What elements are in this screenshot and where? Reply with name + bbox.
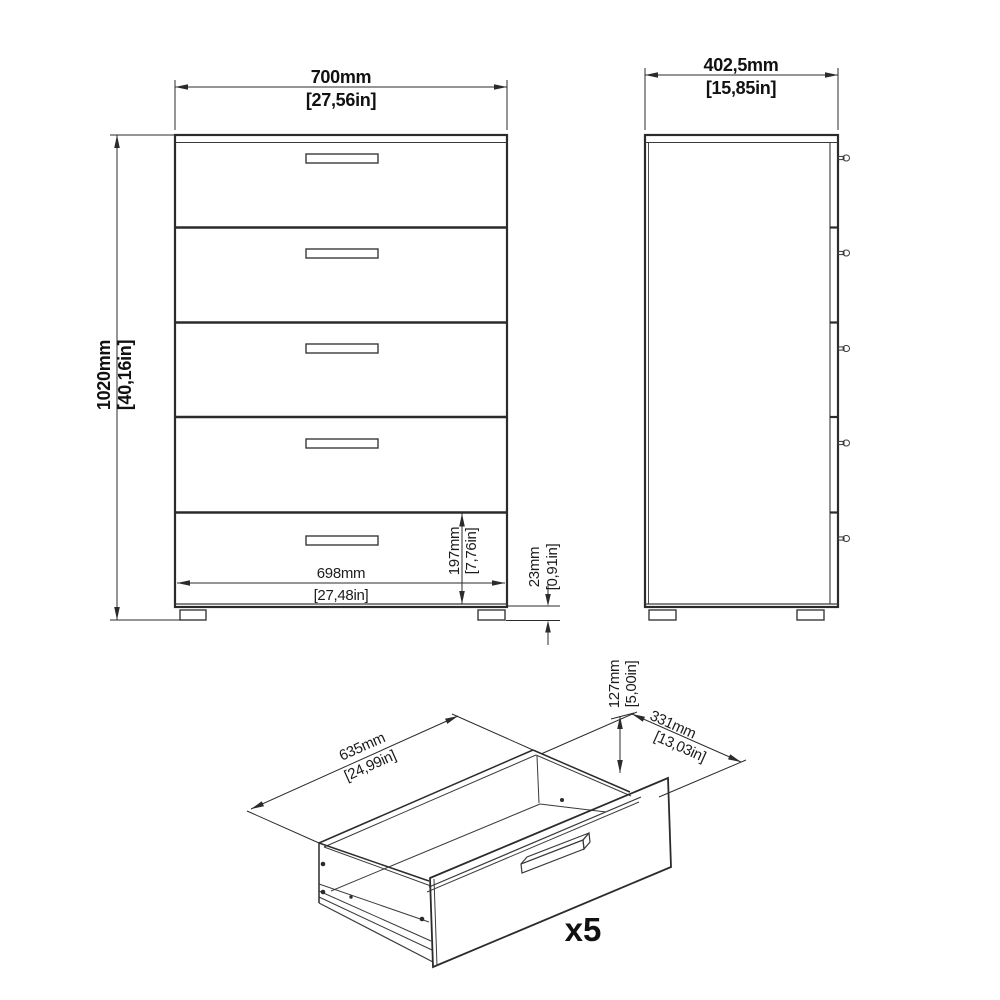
drawer-handle: [306, 154, 378, 163]
inner-width-mm-label: 698mm: [317, 565, 366, 582]
drawer-height-mm-label: 127mm: [606, 660, 623, 709]
side-depth-dimension: 402,5mm [15,85in]: [645, 55, 838, 130]
side-drawer-joints: [830, 228, 838, 513]
drawer-iso-handle: [521, 833, 590, 873]
drawer-width-dimension: 635mm [24,99in]: [247, 714, 533, 843]
side-front-foot: [649, 610, 676, 620]
side-depth-mm-label: 402,5mm: [704, 55, 779, 75]
dimension-diagram: 700mm [27,56in] 1020mm [40,16in] 698mm […: [0, 0, 1000, 1000]
front-feet: [180, 610, 505, 620]
drawer-depth-dimension: 331mm [13,03in]: [541, 707, 746, 797]
foot-mm-label: 23mm: [526, 547, 543, 587]
drawer-front-height-dimension: 197mm [7,76in]: [446, 514, 480, 605]
side-feet: [649, 610, 824, 620]
inner-width-in-label: [27,48in]: [314, 587, 369, 604]
front-height-in-label: [40,16in]: [115, 340, 135, 410]
front-width-dimension: 700mm [27,56in]: [175, 67, 507, 130]
front-height-dimension: 1020mm [40,16in]: [94, 135, 181, 620]
drawer-handle: [306, 344, 378, 353]
cam-lock-hole: [560, 798, 564, 802]
front-drawer-handles: [306, 154, 378, 545]
drawer-front-panel: [430, 778, 671, 967]
drawer-quantity-label: x5: [565, 911, 602, 948]
drawer-handle: [306, 536, 378, 545]
drawer-iso-view: 635mm [24,99in] 331mm [13,03in] 127mm [5…: [247, 660, 746, 967]
front-width-mm-label: 700mm: [311, 67, 372, 87]
foot-in-label: [0,91in]: [544, 543, 561, 590]
rail-screw: [420, 917, 425, 922]
front-view: 700mm [27,56in] 1020mm [40,16in] 698mm […: [94, 67, 561, 645]
drawer-front-in-label: [7,76in]: [463, 527, 480, 574]
front-right-foot: [478, 610, 505, 620]
drawer-front-mm-label: 197mm: [446, 527, 463, 576]
side-depth-in-label: [15,85in]: [706, 78, 776, 98]
front-height-mm-label: 1020mm: [94, 340, 114, 410]
rail-screw: [349, 895, 352, 898]
diagram-svg: 700mm [27,56in] 1020mm [40,16in] 698mm […: [0, 0, 1000, 1000]
side-handle-pegs: [838, 155, 850, 542]
side-back-foot: [797, 610, 824, 620]
rail-screw: [321, 862, 326, 867]
foot-height-dimension: 23mm [0,91in]: [506, 543, 561, 645]
front-left-foot: [180, 610, 206, 620]
drawer-handle: [306, 249, 378, 258]
drawer-height-in-label: [5,00in]: [623, 660, 640, 707]
front-width-in-label: [27,56in]: [306, 90, 376, 110]
rail-screw: [321, 890, 326, 895]
drawer-height-dimension: 127mm [5,00in]: [606, 660, 640, 773]
side-view: 402,5mm [15,85in]: [645, 55, 850, 620]
drawer-handle: [306, 439, 378, 448]
side-cabinet-outline: [645, 135, 838, 607]
